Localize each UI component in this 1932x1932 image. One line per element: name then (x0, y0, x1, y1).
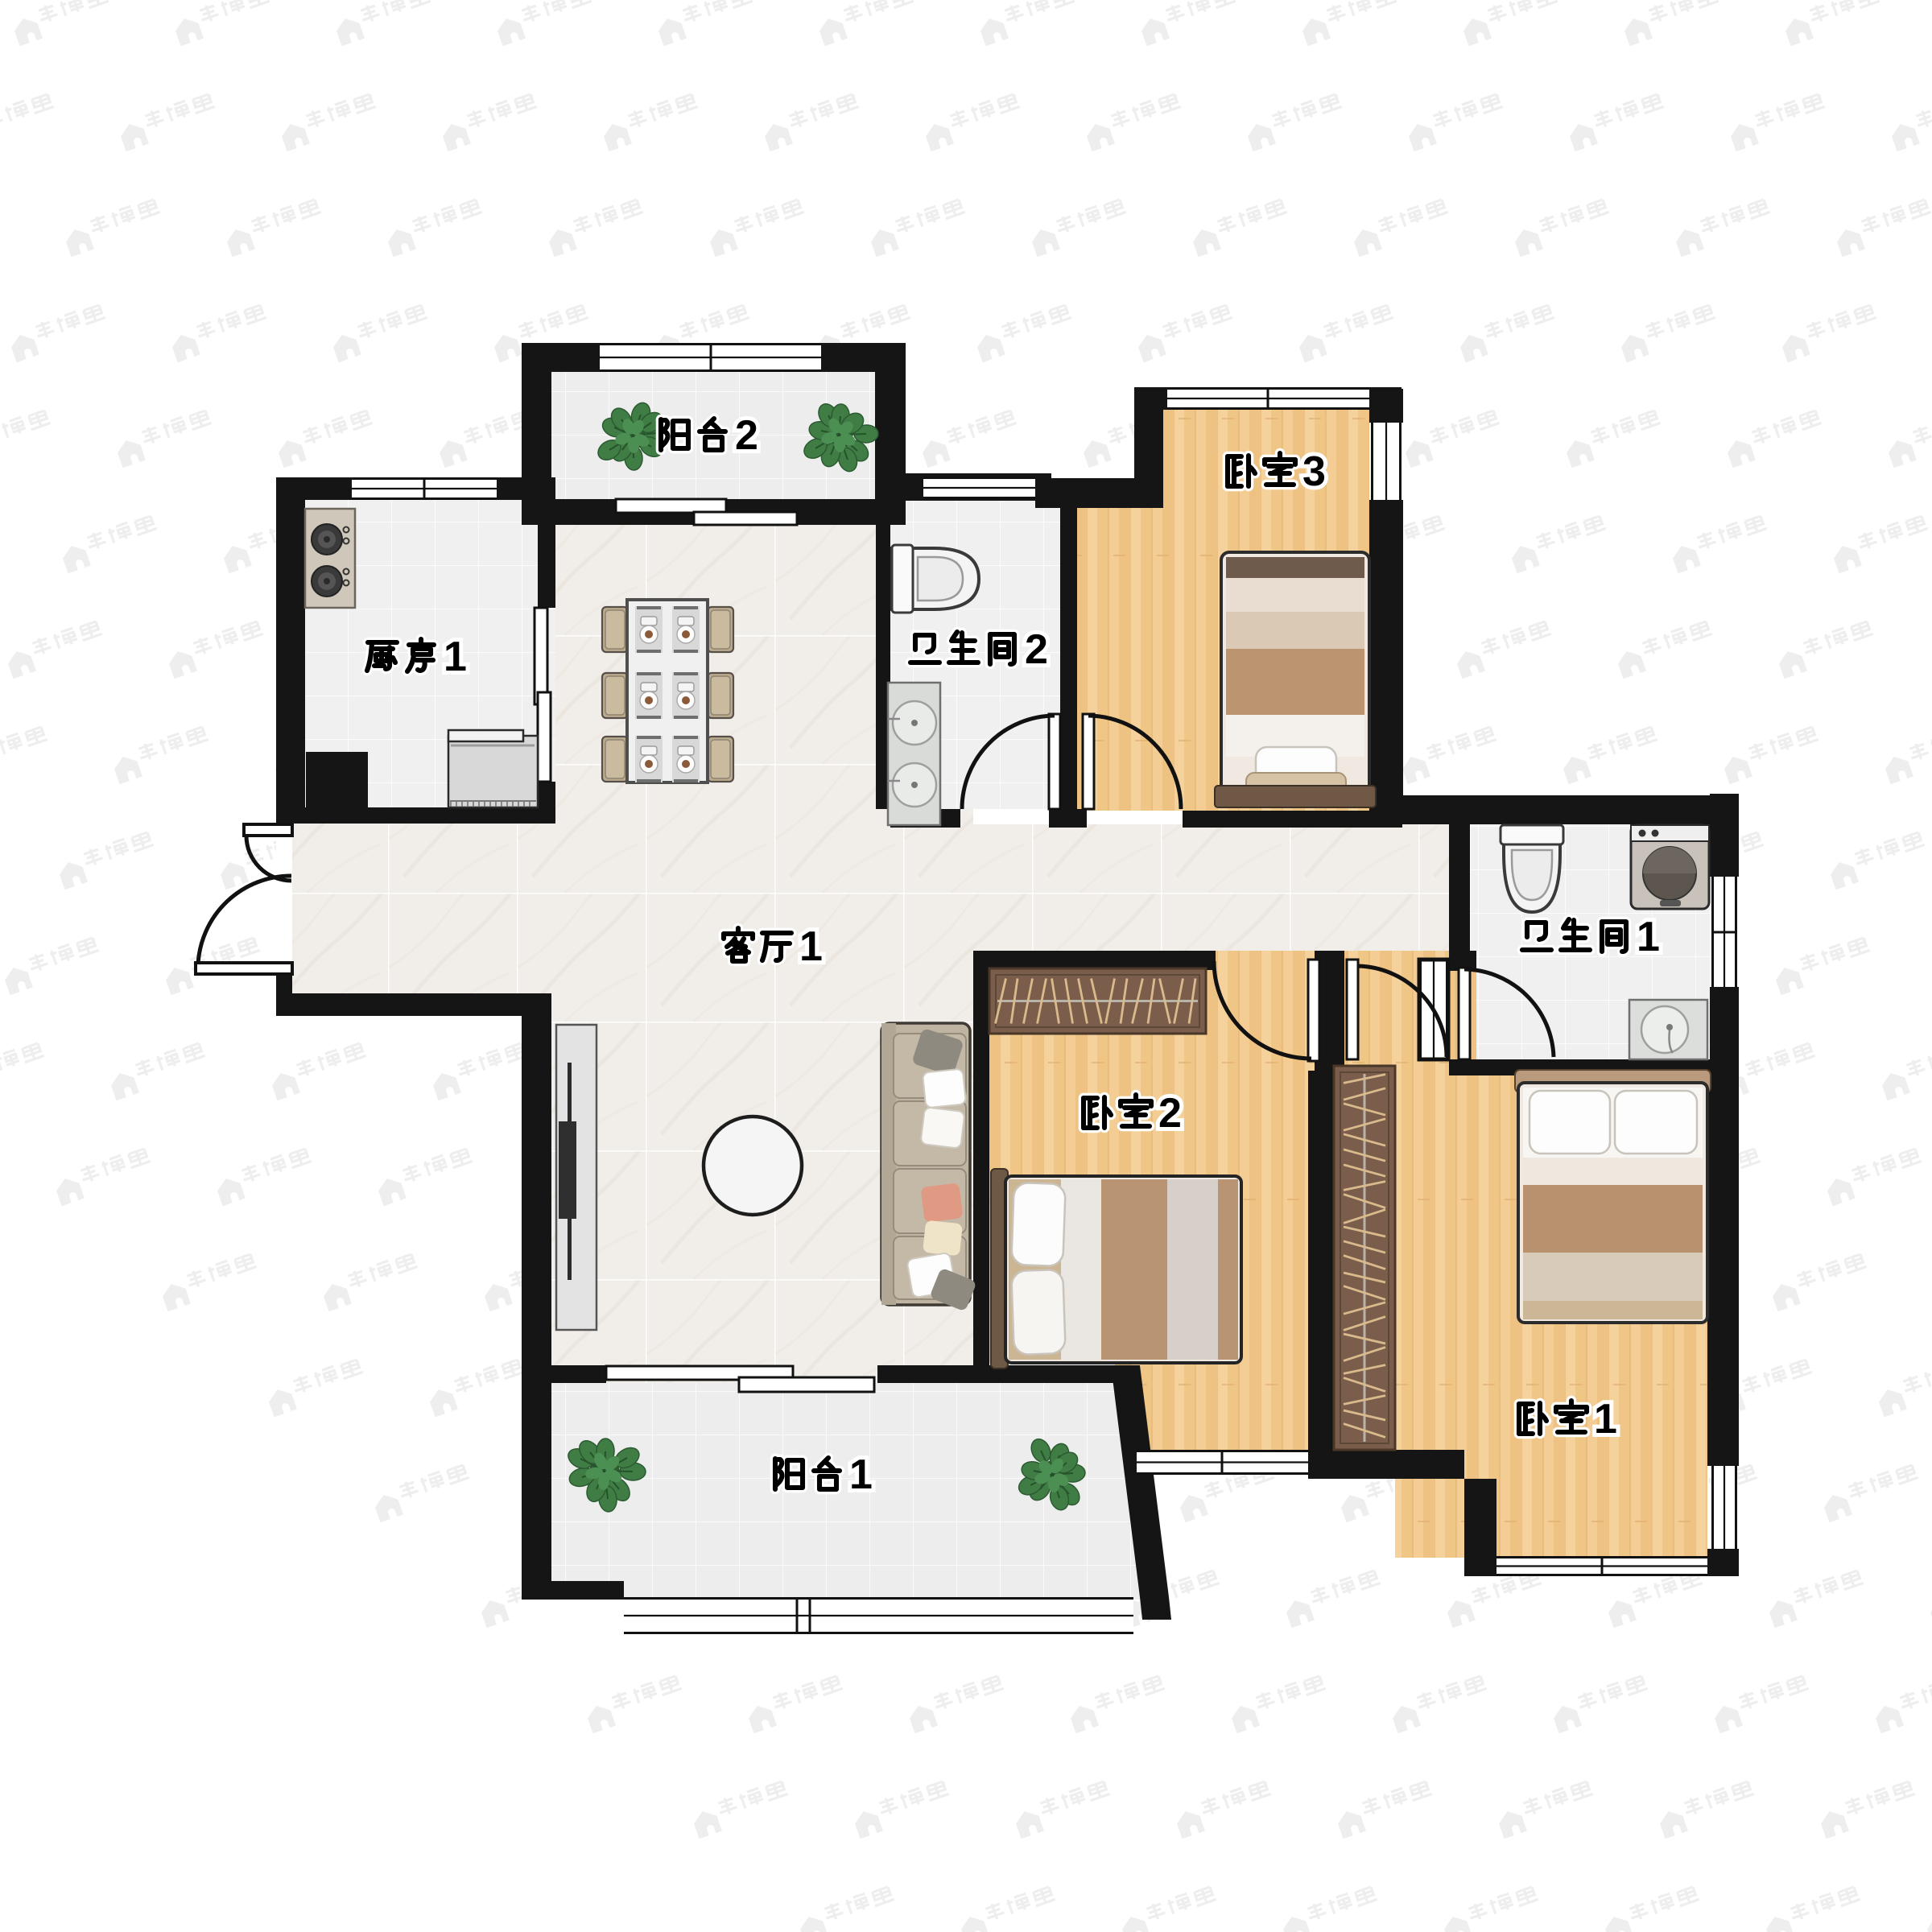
svg-text:2: 2 (1025, 626, 1048, 673)
svg-text:2: 2 (1158, 1090, 1182, 1137)
svg-text:1: 1 (799, 923, 823, 970)
svg-text:1: 1 (444, 634, 467, 680)
svg-text:1: 1 (1594, 1396, 1617, 1443)
svg-text:2: 2 (735, 412, 758, 459)
svg-text:1: 1 (849, 1451, 873, 1498)
svg-text:1: 1 (1637, 914, 1660, 960)
svg-text:3: 3 (1302, 448, 1326, 495)
